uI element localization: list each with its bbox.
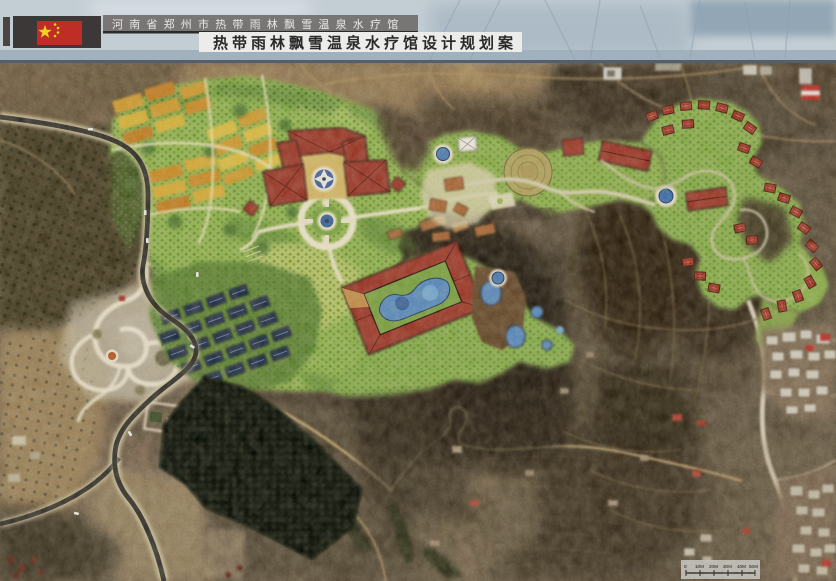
svg-text:热带雨林飘雪温泉水疗馆设计规划案: 热带雨林飘雪温泉水疗馆设计规划案 xyxy=(213,34,517,52)
svg-text:河南省郑州市热带雨林飘雪温泉水疗馆: 河南省郑州市热带雨林飘雪温泉水疗馆 xyxy=(112,17,404,31)
